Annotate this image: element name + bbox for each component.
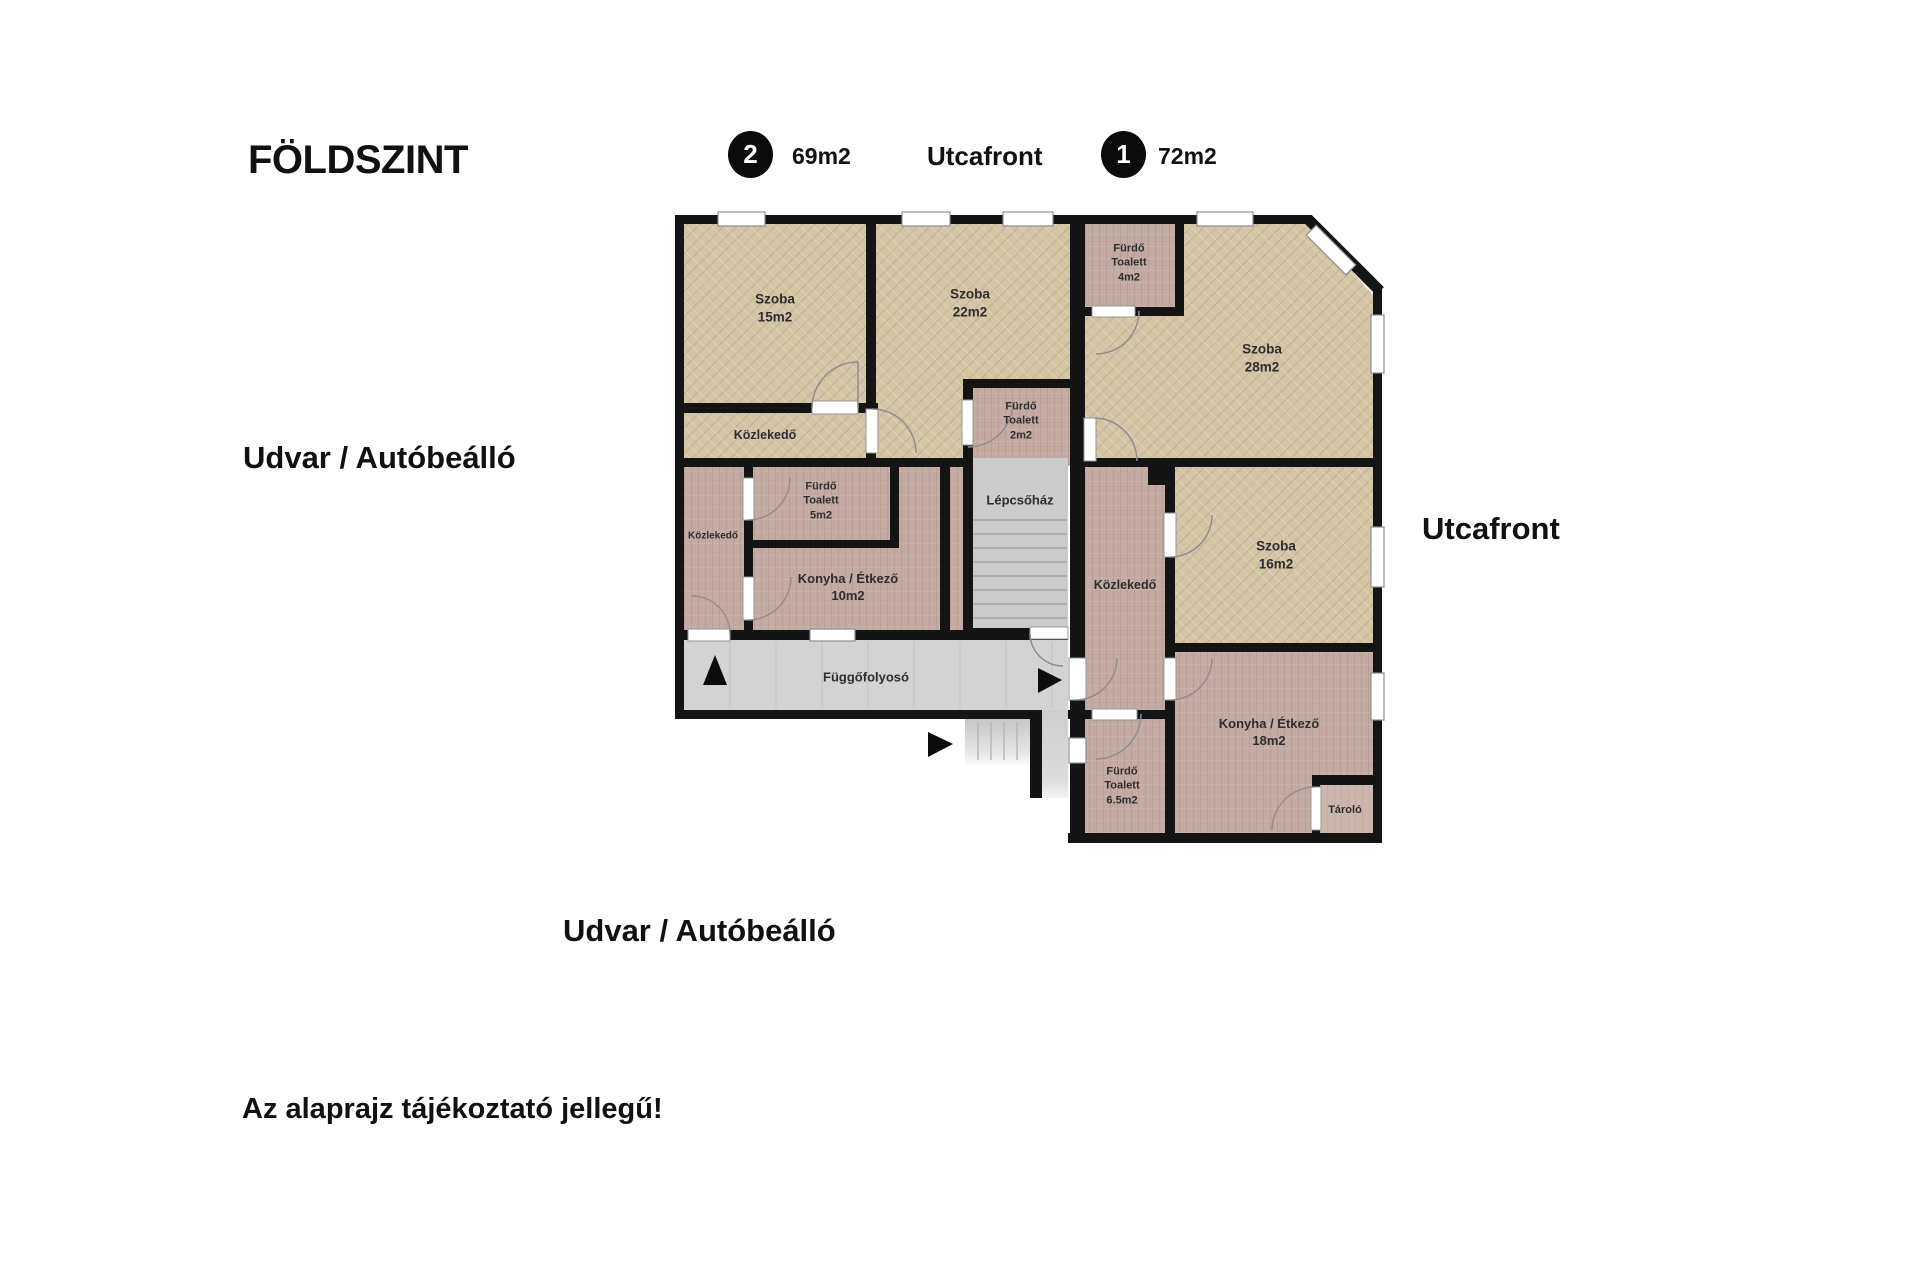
room-label-kozlekedo-tan: Közlekedő <box>734 427 797 443</box>
courtyard-label-bottom: Udvar / Autóbeálló <box>563 913 836 949</box>
page-title: FÖLDSZINT <box>248 138 468 183</box>
room-label-konyha10: Konyha / Étkező10m2 <box>798 571 898 605</box>
unit-2-area: 69m2 <box>792 143 851 170</box>
unit-1-number: 1 <box>1116 139 1130 170</box>
street-label-top: Utcafront <box>927 141 1043 172</box>
room-label-szoba28: Szoba28m2 <box>1242 340 1282 375</box>
room-label-kozlekedo-left: Közlekedő <box>688 530 738 543</box>
entrance-arrow-right-icon <box>1038 668 1062 693</box>
entrance-arrow-up-icon <box>703 655 727 685</box>
stair-arrow-right-icon <box>928 732 953 757</box>
street-label-right: Utcafront <box>1422 511 1560 547</box>
courtyard-label-left: Udvar / Autóbeálló <box>243 440 516 476</box>
room-label-szoba16: Szoba16m2 <box>1256 537 1296 572</box>
room-label-fuggofolyoso: Függőfolyosó <box>823 670 909 687</box>
room-label-furdo65: FürdőToalett6.5m2 <box>1104 765 1139 808</box>
room-label-lepcsohaz: Lépcsőház <box>986 493 1053 510</box>
unit-1-area: 72m2 <box>1158 143 1217 170</box>
plan-linework <box>0 0 1920 1282</box>
room-label-furdo5: FürdőToalett5m2 <box>803 480 838 523</box>
room-label-szoba22: Szoba22m2 <box>950 285 990 320</box>
room-label-tarolo: Tároló <box>1328 803 1362 817</box>
room-label-kozlekedo-right: Közlekedő <box>1094 577 1157 593</box>
unit-2-badge: 2 <box>728 131 773 178</box>
unit-1-badge: 1 <box>1101 131 1146 178</box>
room-label-konyha18: Konyha / Étkező18m2 <box>1219 716 1319 750</box>
room-label-furdo2: FürdőToalett2m2 <box>1003 400 1038 443</box>
stair-treads <box>973 520 1067 618</box>
exterior-stair-treads <box>978 722 1017 760</box>
floorplan-page: Szoba15m2 Szoba22m2 FürdőToalett4m2 Szob… <box>0 0 1920 1282</box>
room-label-furdo4: FürdőToalett4m2 <box>1111 242 1146 285</box>
disclaimer-text: Az alaprajz tájékoztató jellegű! <box>242 1093 663 1126</box>
room-label-szoba15: Szoba15m2 <box>755 290 795 325</box>
unit-2-number: 2 <box>743 139 757 170</box>
